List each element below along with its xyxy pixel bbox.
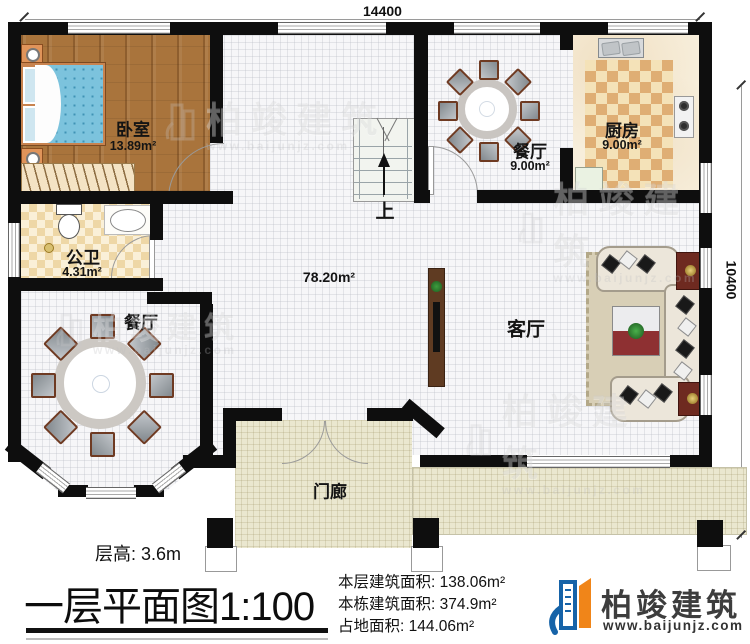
bathroom-door-leaf (149, 236, 155, 279)
wall-hall-dining (414, 35, 428, 203)
plan-scale: 1:100 (219, 585, 314, 629)
table-center (479, 101, 495, 117)
dining-chair (90, 432, 115, 457)
porch-pillar-right (413, 518, 439, 548)
decor (687, 393, 698, 404)
column-base (411, 546, 443, 572)
lamp (26, 48, 40, 62)
sink-basin (621, 41, 641, 56)
terrace-pillar (697, 520, 723, 547)
wardrobe (21, 163, 135, 193)
porch-pillar-left (207, 518, 233, 548)
wall-dining-bottom (414, 190, 430, 203)
window-right-2 (700, 248, 712, 288)
dining-chair (149, 373, 174, 398)
kitchen-sink (598, 38, 644, 58)
stair-stringer (359, 119, 360, 199)
top-dimension-line (25, 19, 700, 20)
dining-chair (31, 373, 56, 398)
wall-kitchen-bottom (477, 190, 712, 203)
wall-bathroom-bottom (8, 278, 163, 291)
wall-porch-top-left (223, 408, 282, 421)
wall-bedroom-right (210, 35, 223, 143)
wall-bathroom-right (150, 204, 163, 240)
wall-kitchen-left-stub (560, 35, 573, 50)
dim-tick (19, 12, 29, 22)
bathroom-sink (110, 209, 146, 232)
wall-living-bottom-left (420, 455, 527, 467)
kitchen-area: 9.00m² (602, 138, 642, 152)
dining-door-leaf (428, 146, 434, 195)
window-top-hall (278, 22, 386, 34)
tv-cabinet (428, 268, 445, 387)
stat-building-area: 本栋建筑面积: 374.9m² (338, 594, 505, 616)
floor-plan-canvas: 14400 10400 (0, 0, 750, 644)
dining-top-area: 9.00m² (510, 159, 550, 173)
dining-chair (479, 142, 499, 162)
plant (431, 281, 442, 292)
porch-label: 门廊 (313, 478, 347, 503)
bathroom-area: 4.31m² (62, 265, 102, 279)
brand-url: www.baijunjz.com (603, 618, 744, 633)
bed (20, 62, 106, 146)
decor (685, 265, 696, 276)
stat-floor-area: 本层建筑面积: 138.06m² (338, 572, 505, 594)
title-underline-thick (26, 628, 328, 633)
dining-bay-label: 餐厅 (124, 309, 158, 334)
column-base (205, 546, 237, 572)
stat-land-area: 占地面积: 144.06m² (338, 616, 505, 638)
toilet-bowl (58, 214, 80, 239)
plant (628, 323, 644, 339)
wall-bedroom-bottom (21, 191, 233, 204)
burner (679, 101, 689, 111)
window-left-bathroom (8, 223, 20, 277)
dining-table-bay (54, 337, 146, 429)
brand-logo: 柏竣建筑 www.baijunjz.com (545, 576, 745, 640)
window-right-1 (700, 163, 712, 213)
right-dimension-label: 10400 (723, 261, 739, 300)
dining-chair (520, 101, 540, 121)
bedroom-area: 13.89m² (110, 139, 157, 153)
window-living-bottom (527, 456, 670, 468)
dining-chair (479, 60, 499, 80)
floor-height-label: 层高: 3.6m (95, 540, 181, 566)
column-base (697, 545, 731, 571)
dining-table-top (457, 79, 517, 139)
coffee-table (612, 306, 660, 356)
living-label: 客厅 (507, 315, 545, 342)
burner (679, 121, 689, 131)
staircase (353, 118, 415, 202)
sink-basin (601, 41, 621, 56)
tv (433, 302, 440, 352)
bedroom-label: 卧室 (116, 116, 150, 141)
title-underline-thin (26, 638, 328, 640)
nightstand (21, 44, 43, 63)
top-dimension-label: 14400 (363, 3, 402, 19)
plan-title: 一层平面图1:100 (24, 574, 314, 632)
window-top-dining (454, 22, 540, 34)
window-right-3 (700, 375, 712, 415)
stair-stringer (407, 119, 408, 199)
window-top-kitchen (608, 22, 688, 34)
wall-kitchen-left (560, 148, 573, 203)
wall-bay-top-stub (147, 292, 212, 304)
dim-tick (695, 12, 705, 22)
wall-living-bottom-right (670, 455, 712, 467)
bay-window-center (86, 487, 136, 499)
stair-arrow-shaft (383, 165, 385, 195)
area-stats: 本层建筑面积: 138.06m² 本栋建筑面积: 374.9m² 占地面积: 1… (338, 572, 505, 638)
stove (674, 96, 694, 138)
hall-area: 78.20m² (303, 269, 355, 285)
floor-drain (44, 243, 54, 253)
stairs-up-label: 上 (375, 197, 394, 224)
table-center (92, 375, 110, 393)
plan-title-text: 一层平面图 (24, 585, 219, 629)
window-top-bedroom (68, 22, 170, 34)
brand-logo-icon (545, 576, 597, 638)
dining-chair (90, 314, 115, 339)
dining-chair (438, 101, 458, 121)
